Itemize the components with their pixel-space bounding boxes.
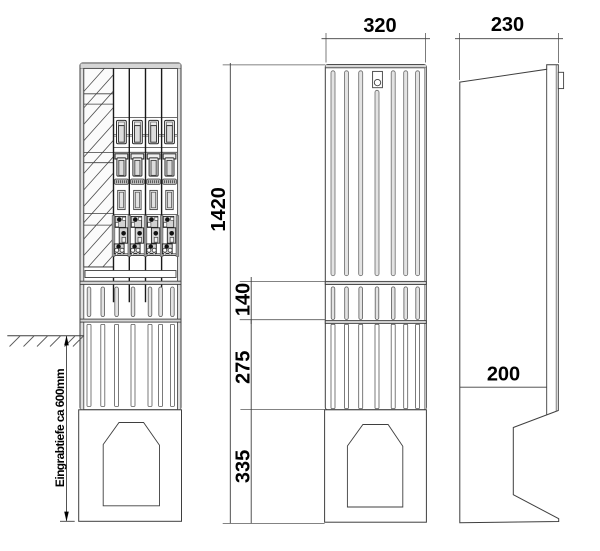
svg-text:Eingrabtiefe ca 600mm: Eingrabtiefe ca 600mm xyxy=(53,369,67,487)
svg-text:320: 320 xyxy=(363,15,396,37)
svg-text:1420: 1420 xyxy=(208,187,230,232)
svg-text:140: 140 xyxy=(233,283,255,316)
svg-text:200: 200 xyxy=(487,364,520,386)
svg-text:335: 335 xyxy=(233,450,255,483)
svg-text:275: 275 xyxy=(233,351,255,384)
svg-text:230: 230 xyxy=(491,14,524,36)
